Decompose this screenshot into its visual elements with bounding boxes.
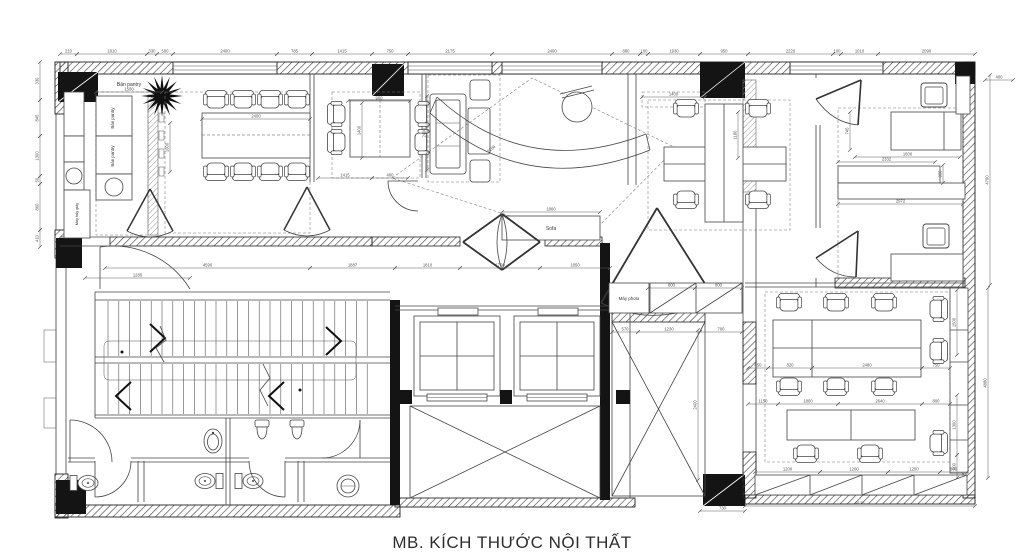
svg-text:410: 410 [34, 234, 39, 242]
entry-door [100, 246, 190, 289]
elevator-bank [395, 306, 635, 498]
door-arc [388, 181, 418, 211]
svg-text:1930: 1930 [669, 48, 679, 53]
svg-text:2090: 2090 [922, 48, 932, 53]
paper-shredder-label: Máy hủy giấy [75, 203, 79, 225]
svg-text:1200: 1200 [849, 466, 859, 471]
door-fan [816, 231, 858, 277]
svg-text:1400: 1400 [669, 91, 679, 96]
svg-text:2400: 2400 [220, 48, 230, 53]
svg-text:1500: 1500 [951, 317, 956, 327]
door-fan-meeting [284, 187, 330, 236]
svg-text:400: 400 [387, 172, 395, 177]
floor-plan-drawing: Bàn pantry Bàn pantry Bàn pantry Máy hủy… [0, 0, 1024, 558]
svg-text:1415: 1415 [340, 172, 350, 177]
coat-hooks [159, 113, 164, 176]
svg-text:1280: 1280 [133, 272, 143, 277]
meeting-room-bottom-right [755, 288, 968, 495]
svg-text:1800: 1800 [546, 206, 556, 211]
wash-basin [204, 429, 222, 453]
drawing-title: MB. KÍCH THƯỚC NỘI THẤT [392, 533, 631, 552]
svg-text:1810: 1810 [423, 262, 433, 267]
svg-text:1200: 1200 [909, 466, 919, 471]
svg-text:1300: 1300 [951, 420, 956, 430]
svg-text:330: 330 [149, 48, 157, 53]
meeting-table-square [328, 92, 433, 211]
svg-text:800: 800 [715, 282, 723, 287]
svg-text:1600: 1600 [903, 151, 913, 156]
low-cabinet-bottom [755, 475, 967, 495]
private-office-right [816, 76, 970, 281]
svg-text:330: 330 [34, 77, 39, 85]
svg-text:400: 400 [996, 74, 1004, 79]
wall-cabinet-right [950, 288, 968, 473]
svg-text:2175: 2175 [445, 48, 455, 53]
svg-text:750: 750 [933, 362, 941, 367]
pantry-counter-label-v1: Bàn pantry [110, 107, 115, 129]
svg-text:845: 845 [34, 114, 39, 122]
svg-text:100: 100 [641, 48, 649, 53]
restrooms [68, 418, 390, 505]
svg-text:1150: 1150 [758, 398, 768, 403]
svg-text:350: 350 [937, 170, 942, 178]
svg-text:4880: 4880 [982, 378, 987, 388]
svg-text:1300: 1300 [34, 151, 39, 161]
svg-text:50: 50 [34, 177, 39, 182]
svg-text:1800: 1800 [803, 398, 813, 403]
svg-text:800: 800 [668, 282, 676, 287]
elevator-car [514, 308, 600, 401]
svg-text:2400: 2400 [692, 400, 697, 410]
svg-text:750: 750 [387, 48, 395, 53]
svg-text:1400: 1400 [356, 125, 361, 135]
plant-icon [141, 75, 183, 117]
svg-text:950: 950 [721, 48, 729, 53]
lounge-sofa-set [428, 75, 500, 182]
svg-text:100: 100 [834, 48, 842, 53]
svg-text:1500: 1500 [124, 86, 134, 91]
door-fan [816, 80, 861, 125]
pantry-counter-label-v2: Bàn pantry [110, 145, 115, 167]
svg-text:1810: 1810 [107, 48, 117, 53]
svg-text:2400: 2400 [547, 48, 557, 53]
pantry-sink [66, 168, 82, 184]
svg-text:1200: 1200 [783, 466, 793, 471]
svg-text:800: 800 [933, 398, 941, 403]
svg-text:1850: 1850 [570, 262, 580, 267]
svg-text:745: 745 [844, 127, 849, 135]
svg-text:1000: 1000 [164, 142, 169, 152]
sink [337, 475, 359, 497]
svg-text:2400: 2400 [421, 128, 426, 138]
svg-text:9125: 9125 [855, 500, 865, 505]
svg-text:2640: 2640 [875, 398, 885, 403]
svg-text:1887: 1887 [348, 262, 358, 267]
svg-text:1180: 1180 [732, 130, 737, 140]
svg-text:210: 210 [65, 48, 73, 53]
sofa-bench-label: Sofa [546, 226, 557, 232]
svg-text:820: 820 [787, 362, 795, 367]
meeting-table-long [165, 91, 310, 234]
photocopier-label: Máy photo [619, 296, 640, 301]
workstation-cluster [642, 92, 790, 230]
svg-text:2220: 2220 [786, 48, 796, 53]
svg-text:785: 785 [291, 48, 299, 53]
svg-text:4590: 4590 [203, 262, 213, 267]
floor-plan-page: Bàn pantry Bàn pantry Bàn pantry Máy hủy… [0, 0, 1024, 558]
elevator-car [414, 308, 500, 401]
fire-stair-shaft: Máy photo [609, 283, 742, 496]
svg-text:500: 500 [951, 462, 956, 470]
svg-text:2400: 2400 [251, 113, 261, 118]
svg-text:880: 880 [623, 48, 631, 53]
svg-text:1750: 1750 [495, 262, 505, 267]
stair-treads [108, 301, 367, 414]
pantry-sink-2 [105, 178, 123, 196]
svg-text:2480: 2480 [862, 362, 872, 367]
svg-text:4790: 4790 [984, 175, 989, 185]
svg-text:1230: 1230 [664, 326, 674, 331]
svg-text:500: 500 [162, 48, 170, 53]
svg-text:570: 570 [622, 326, 630, 331]
svg-text:2332: 2332 [882, 156, 892, 161]
cabinet-diagonal [650, 283, 742, 313]
svg-text:1415: 1415 [337, 48, 347, 53]
svg-text:1010: 1010 [855, 48, 865, 53]
svg-text:730: 730 [719, 505, 727, 510]
elevator-pit [410, 406, 600, 498]
svg-text:900: 900 [376, 95, 384, 100]
svg-text:850: 850 [755, 362, 763, 367]
svg-text:2972: 2972 [896, 198, 906, 203]
staircase [95, 292, 400, 505]
svg-text:700: 700 [718, 326, 726, 331]
svg-text:860: 860 [34, 203, 39, 211]
